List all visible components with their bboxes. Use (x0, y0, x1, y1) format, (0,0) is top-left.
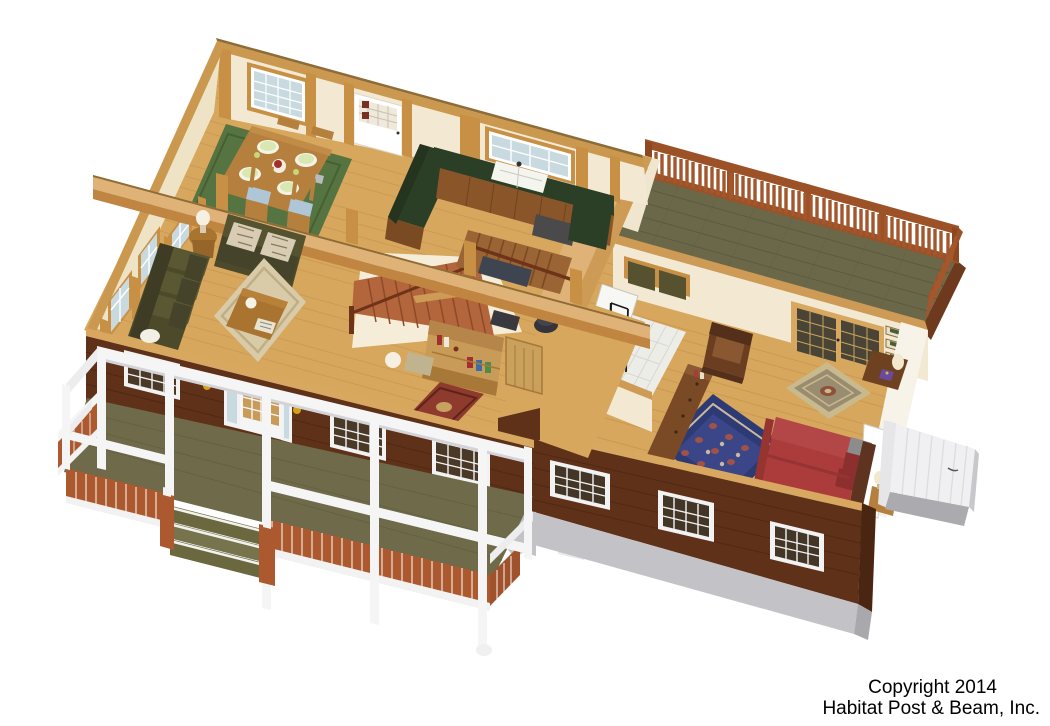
svg-text:Copyright 2014: Copyright 2014 (868, 677, 997, 698)
svg-text:Habitat Post & Beam, Inc.: Habitat Post & Beam, Inc. (822, 698, 1040, 719)
